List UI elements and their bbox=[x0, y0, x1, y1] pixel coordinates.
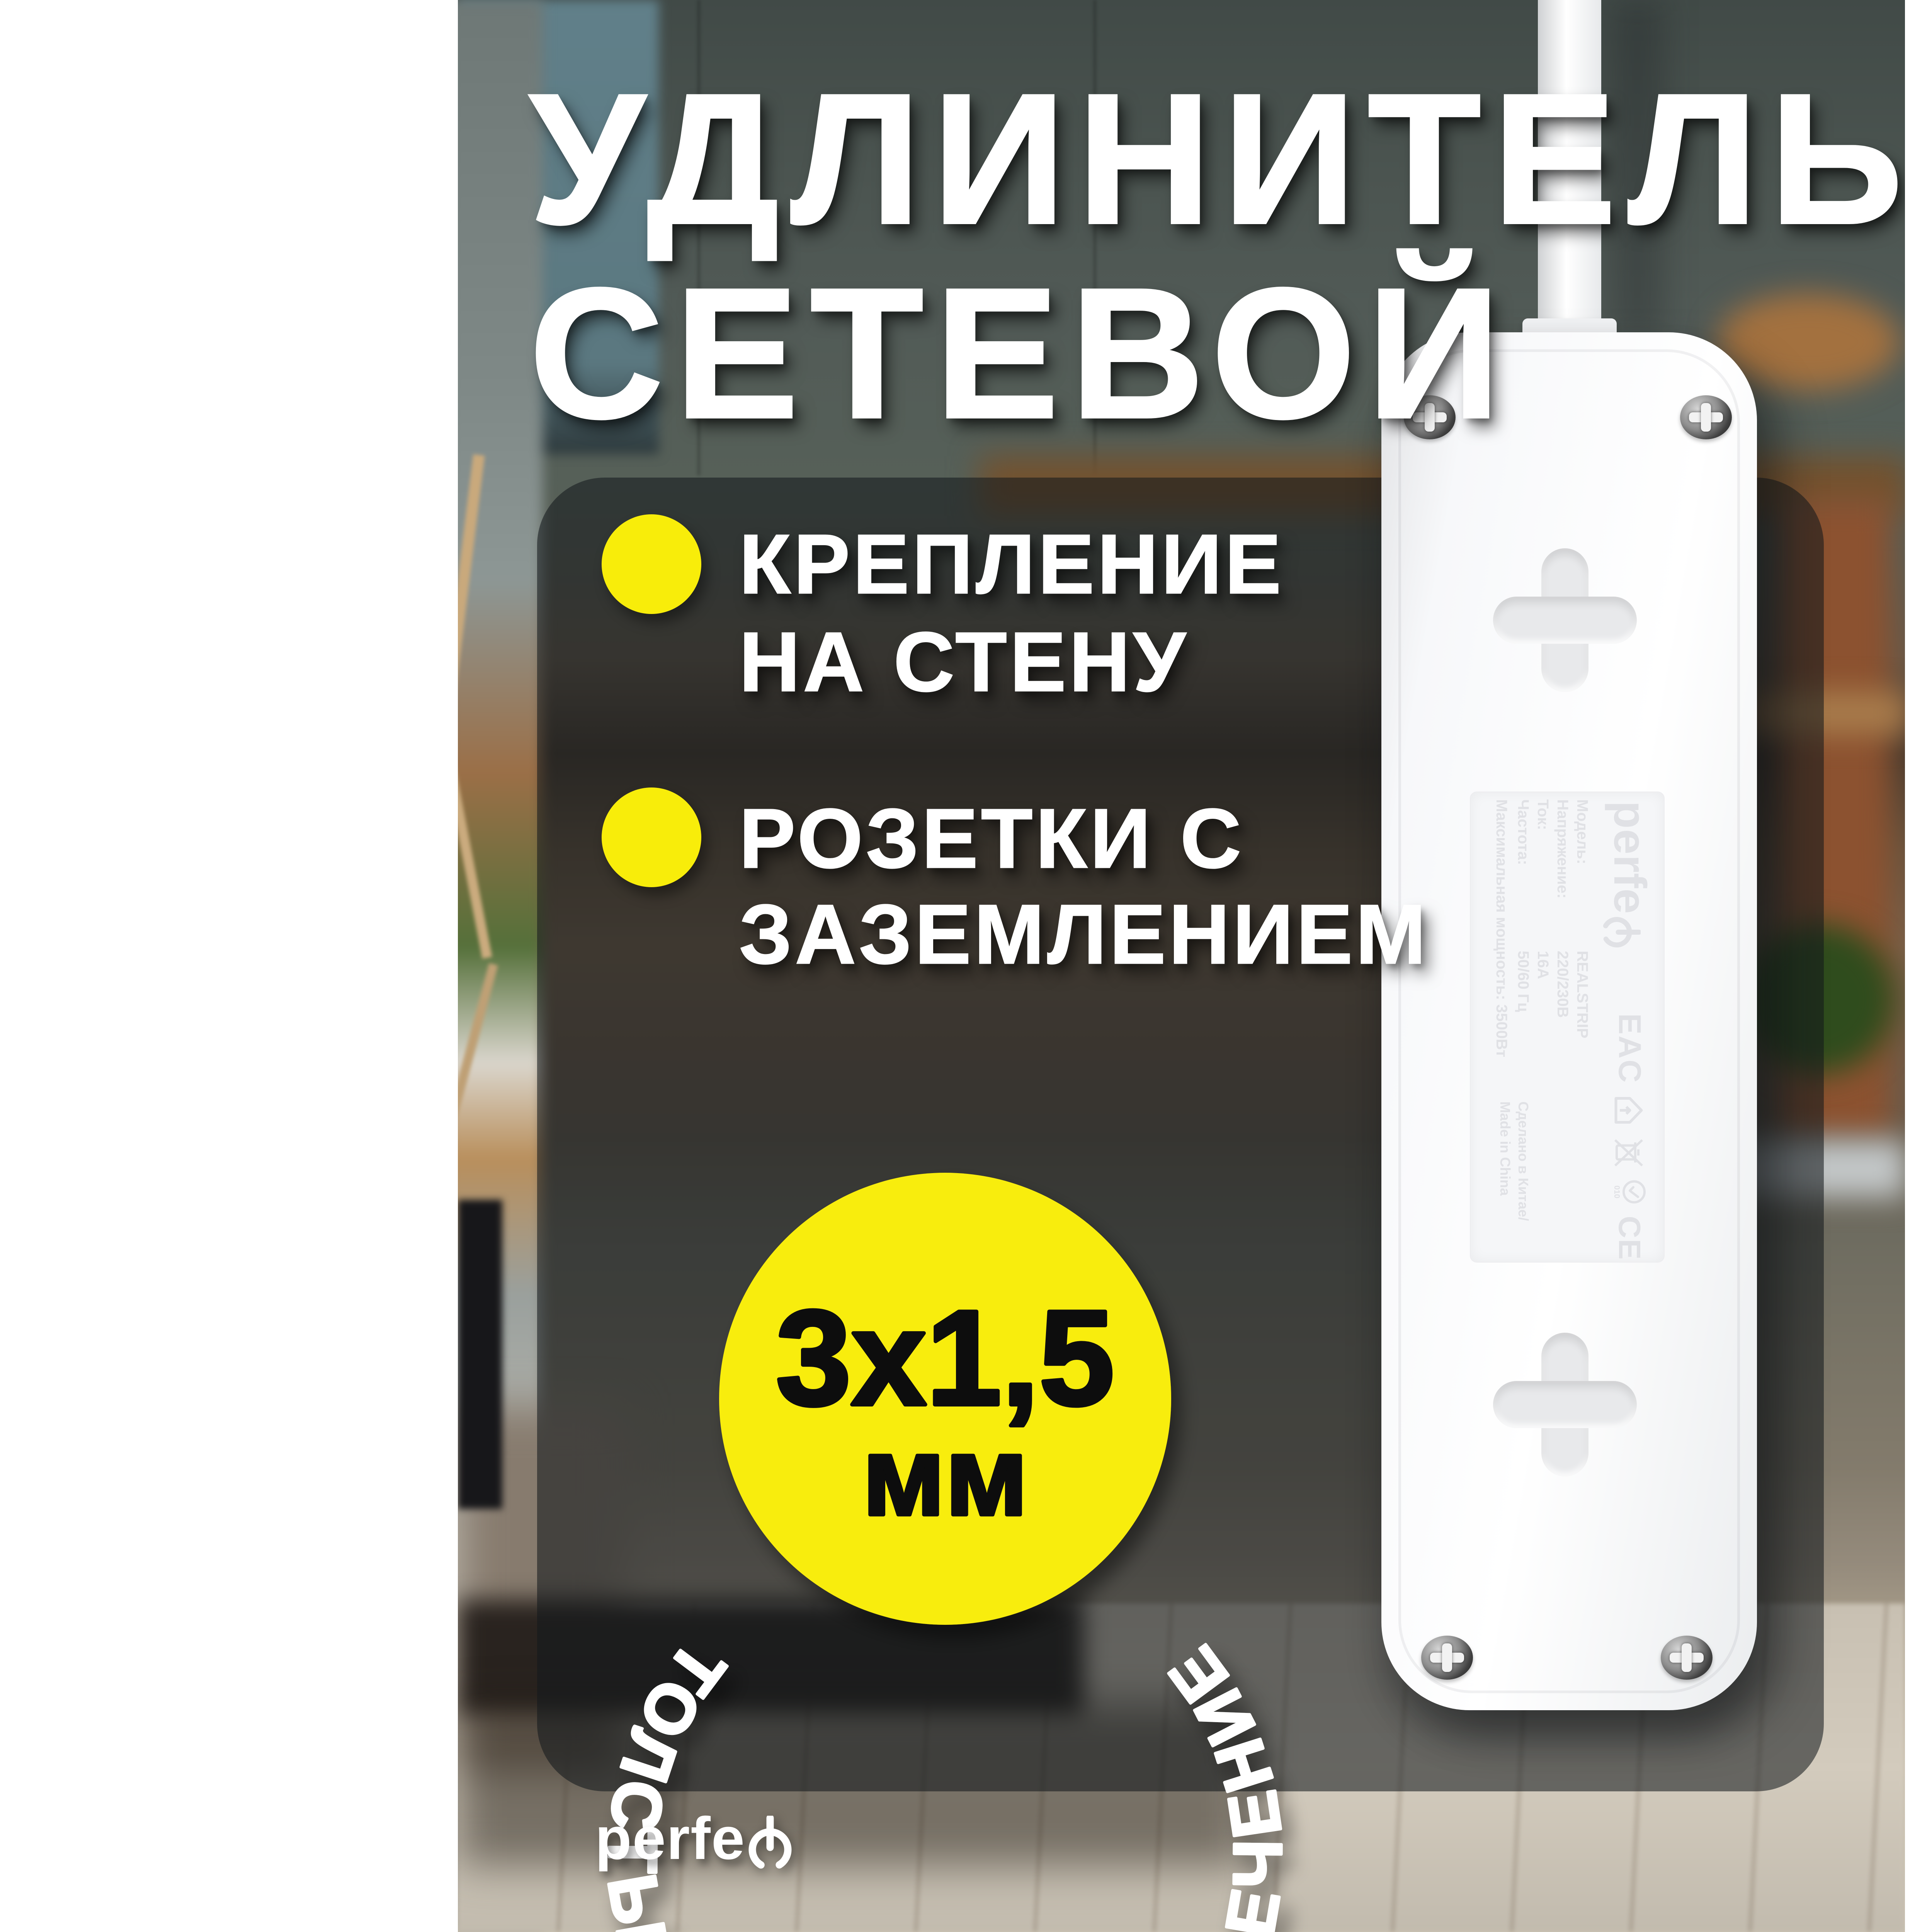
feature1-line1: КРЕПЛЕНИЕ bbox=[739, 522, 1284, 607]
brand-logo: perfe bbox=[595, 1808, 792, 1868]
bullet-dot bbox=[602, 514, 701, 614]
cert-number: 010 bbox=[1612, 1185, 1621, 1198]
page: perfe EAC bbox=[0, 0, 1932, 1932]
spec-row: Напряжение:220/230В bbox=[1553, 799, 1572, 1038]
house-arrow-icon bbox=[1614, 1095, 1645, 1125]
spec-badge: ТОЛСТЫЙ МЕДНЫЙ ПРОВОД СЕЧЕНИЕ 3x1,5 мм bbox=[458, 819, 1525, 1932]
spec-label: Напряжение: bbox=[1553, 799, 1572, 951]
product-poster: perfe EAC bbox=[458, 0, 1905, 1932]
power-symbol-icon bbox=[1600, 917, 1641, 947]
label-brand-logo: perfe bbox=[1604, 801, 1656, 947]
cert-circle-icon bbox=[1622, 1179, 1647, 1204]
badge-arc-text: ТОЛСТЫЙ МЕДНЫЙ ПРОВОД СЕЧЕНИЕ bbox=[593, 1628, 1296, 1932]
spec-row: Ток:16А bbox=[1533, 799, 1553, 1038]
badge-unit: мм bbox=[862, 1413, 1028, 1539]
spec-label: Модель: bbox=[1572, 799, 1592, 951]
spec-rows: Модель:REALSTRIP Напряжение:220/230В Ток… bbox=[1513, 799, 1592, 1038]
spec-value: REALSTRIP bbox=[1574, 951, 1591, 1038]
spec-value: 220/230В bbox=[1554, 951, 1571, 1017]
screw-icon bbox=[1680, 395, 1732, 439]
eac-mark: EAC bbox=[1611, 1013, 1648, 1083]
spec-row: Модель:REALSTRIP bbox=[1572, 799, 1592, 1038]
crossed-bin-icon bbox=[1614, 1137, 1645, 1168]
screw-icon bbox=[1661, 1636, 1713, 1680]
hole-slot-horizontal bbox=[1493, 597, 1637, 644]
feature1-line2: НА СТЕНУ bbox=[739, 620, 1189, 704]
spec-value: 16А bbox=[1534, 951, 1551, 979]
ce-mark: CE bbox=[1612, 1216, 1647, 1260]
brand-wordmark: perfe bbox=[595, 1808, 745, 1868]
certification-icons: EAC bbox=[1611, 1013, 1648, 1260]
page-title-line1: УДЛИНИТЕЛЬ bbox=[529, 66, 1905, 252]
badge-value: 3x1,5 bbox=[776, 1282, 1114, 1434]
spec-label: Ток: bbox=[1533, 799, 1553, 951]
power-symbol-icon bbox=[748, 1816, 792, 1872]
page-title-line2: СЕТЕВОЙ bbox=[529, 260, 1512, 446]
label-brand-wordmark: perfe bbox=[1604, 801, 1656, 914]
wall-mount-hole bbox=[1493, 548, 1637, 692]
rostest-mark: 010 bbox=[1612, 1179, 1647, 1204]
